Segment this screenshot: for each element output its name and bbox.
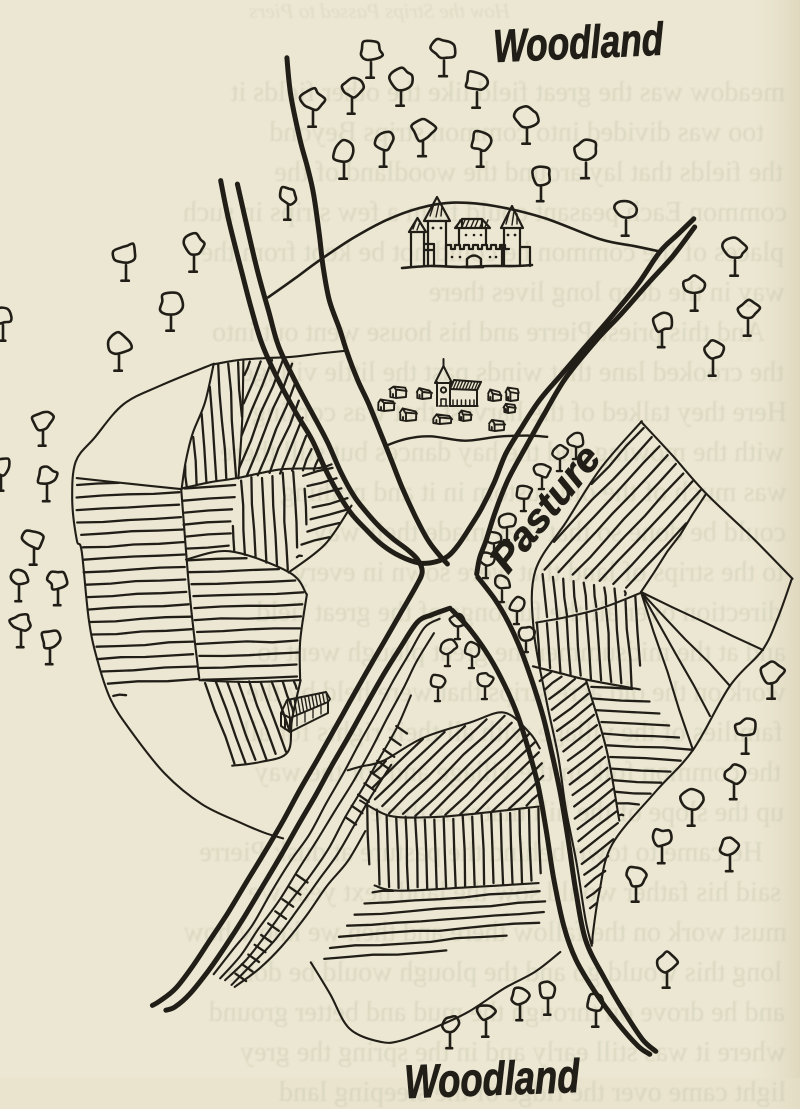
svg-text:meadow was the great field lik: meadow was the great field like the othe… [230,77,785,108]
svg-text:the crooked lane that winds pa: the crooked lane that winds past the lit… [241,357,784,388]
svg-text:How the Strips Passed to Piers: How the Strips Passed to Piers [249,0,511,23]
svg-text:Here they talked of the harves: Here they talked of the harvest that was… [252,397,787,428]
svg-text:families of the village with a: families of the village with all their r… [242,717,783,748]
svg-text:must work on the fallow there: must work on the fallow there and then w… [183,917,787,948]
svg-text:the fields that lay around the: the fields that lay around the woodland … [274,157,783,188]
svg-text:places of the common he could: places of the common he could not be kep… [201,237,784,268]
svg-text:and he drove on through the mu: and he drove on through the mud and bett… [209,997,785,1028]
svg-text:Woodland: Woodland [492,13,665,72]
svg-text:Woodland: Woodland [403,1049,581,1108]
svg-text:way in the deep long lives the: way in the deep long lives there [429,277,785,308]
svg-text:And this priest Pierre and his: And this priest Pierre and his house wen… [212,317,765,348]
